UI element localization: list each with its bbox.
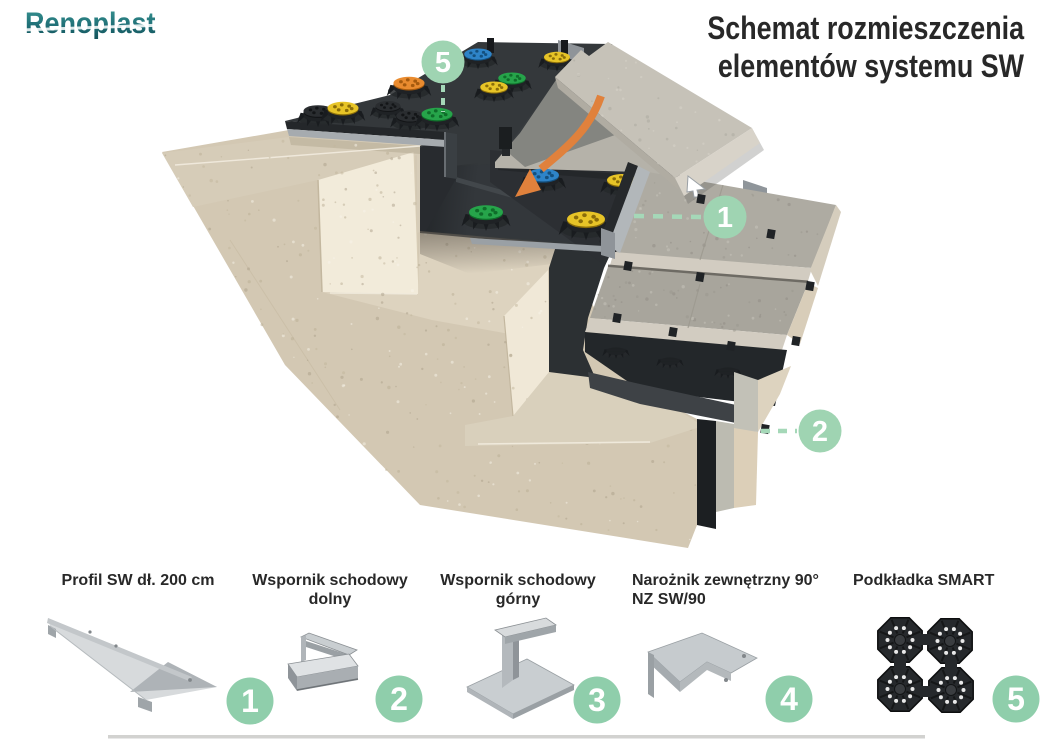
svg-text:1: 1: [241, 683, 259, 719]
svg-text:2: 2: [812, 416, 828, 448]
svg-text:4: 4: [780, 681, 798, 717]
svg-text:2: 2: [390, 681, 408, 717]
svg-text:3: 3: [588, 682, 606, 718]
svg-text:5: 5: [435, 47, 451, 79]
svg-text:1: 1: [717, 202, 733, 234]
svg-text:5: 5: [1007, 681, 1025, 717]
